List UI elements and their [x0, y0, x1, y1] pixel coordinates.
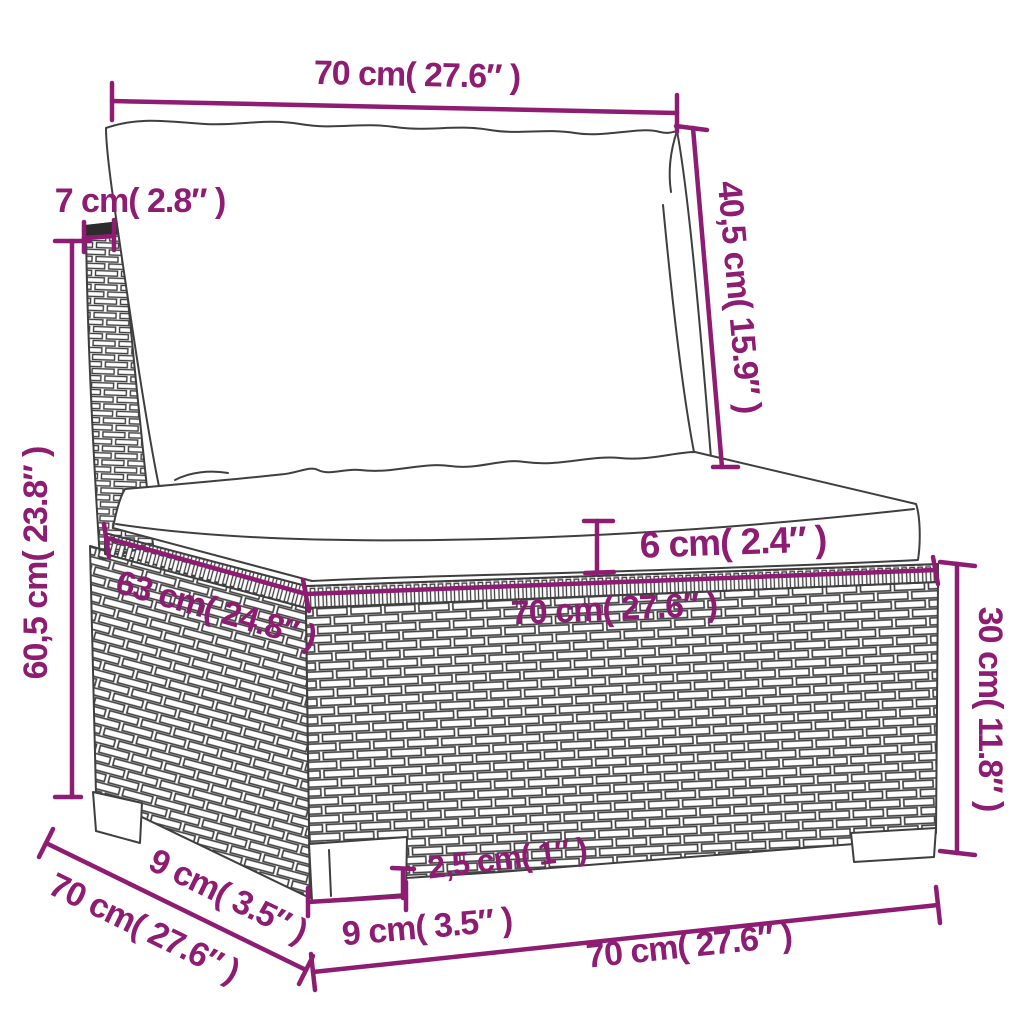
dim-label-base-height: 30 cm( 11.8″ ) [973, 607, 1007, 812]
dim-label-seat-width: 70 cm( 27.6″ ) [510, 588, 718, 631]
dim-label-top-width: 70 cm( 27.6″ ) [313, 56, 520, 94]
dim-line-total-height [55, 241, 90, 797]
dim-line-base-height [940, 562, 975, 855]
dim-label-cushion-thickness: 6 cm( 2.4″ ) [639, 520, 827, 563]
foot-front-right [851, 828, 936, 862]
dim-label-backrest-depth: 7 cm( 2.8″ ) [55, 184, 226, 218]
dimension-diagram: 70 cm( 27.6″ ) 7 cm( 2.8″ ) 40,5 cm( 15.… [0, 0, 1024, 1024]
back-cushion [106, 121, 711, 506]
dim-label-total-height: 60,5 cm( 23.8″ ) [19, 447, 53, 680]
